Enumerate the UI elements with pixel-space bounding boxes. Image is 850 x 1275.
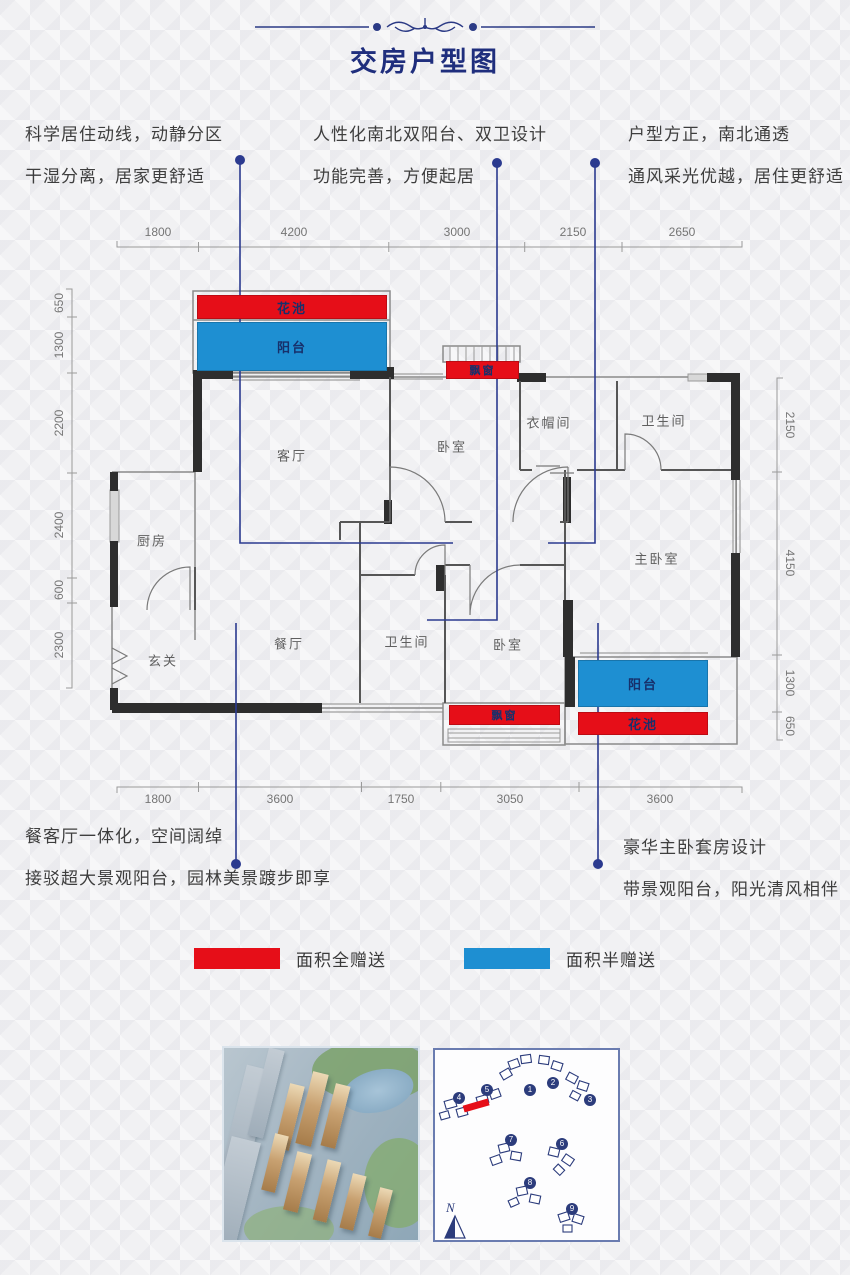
building-number: 1 — [524, 1084, 536, 1096]
band-label: 花池 — [628, 714, 658, 733]
dim-label: 2400 — [52, 512, 66, 539]
legend-swatch-red — [194, 948, 280, 969]
room-label-master: 主卧室 — [634, 549, 679, 568]
legend-swatch-blue — [464, 948, 550, 969]
floorplan-poster: 交房户型图 科学居住动线，动静分区 干湿分离，居家更舒适 人性化南北双阳台、双卫… — [0, 0, 850, 1275]
dim-label: 1800 — [145, 225, 172, 239]
compass-n-label: N — [445, 1200, 456, 1215]
band-label: 飘窗 — [492, 707, 518, 723]
residential-tower — [313, 1159, 342, 1223]
room-label-bedroom-bottom: 卧室 — [493, 635, 523, 654]
dim-label: 650 — [783, 716, 797, 736]
residential-tower — [339, 1173, 366, 1231]
highlighted-unit — [463, 1099, 490, 1113]
site-plan: N 1 2 3 4 5 6 7 8 9 — [433, 1048, 620, 1242]
dim-label: 2200 — [52, 410, 66, 437]
dim-label: 1800 — [145, 792, 172, 806]
room-label-living: 客厅 — [277, 446, 307, 465]
legend-item-full-gift: 面积全赠送 — [194, 946, 386, 971]
room-label-dining: 餐厅 — [274, 634, 304, 653]
building-number: 8 — [524, 1177, 536, 1189]
band-label: 阳台 — [628, 674, 658, 693]
dim-label: 3050 — [497, 792, 524, 806]
room-label-bedroom-top: 卧室 — [437, 437, 467, 456]
building-number: 9 — [566, 1203, 578, 1215]
leader-lines — [236, 162, 598, 862]
flower-bed-band-top: 花池 — [197, 295, 387, 319]
building-number: 4 — [453, 1092, 465, 1104]
site-plan-buildings: N — [435, 1050, 618, 1240]
baywindow-band-top: 飘窗 — [446, 361, 519, 379]
dim-label: 2300 — [52, 632, 66, 659]
balcony-band-top: 阳台 — [197, 322, 387, 371]
legend: 面积全赠送 面积半赠送 — [0, 946, 850, 971]
dim-label: 2650 — [669, 225, 696, 239]
dim-label: 600 — [52, 580, 66, 600]
building-number: 2 — [547, 1077, 559, 1089]
dim-label: 4150 — [783, 550, 797, 577]
band-label: 飘窗 — [470, 362, 496, 378]
legend-label: 面积全赠送 — [296, 946, 386, 971]
room-label-bath-top: 卫生间 — [641, 411, 686, 430]
legend-item-half-gift: 面积半赠送 — [464, 946, 656, 971]
building-number: 6 — [556, 1138, 568, 1150]
aerial-render-image — [222, 1046, 420, 1242]
building-number: 7 — [505, 1134, 517, 1146]
band-label: 花池 — [277, 298, 307, 317]
leader-dots — [231, 155, 603, 869]
dim-label: 2150 — [560, 225, 587, 239]
room-label-bath-bottom: 卫生间 — [384, 632, 429, 651]
dim-label: 1750 — [388, 792, 415, 806]
dim-label: 2150 — [783, 412, 797, 439]
dim-label: 4200 — [281, 225, 308, 239]
legend-label: 面积半赠送 — [566, 946, 656, 971]
band-label: 阳台 — [277, 337, 307, 356]
room-label-cloakroom: 衣帽间 — [526, 413, 571, 432]
building-number: 5 — [481, 1084, 493, 1096]
compass-icon: N — [445, 1200, 465, 1238]
dim-label: 3600 — [267, 792, 294, 806]
dim-label: 3000 — [444, 225, 471, 239]
balcony-band-bottom: 阳台 — [578, 660, 708, 707]
flower-bed-band-bottom: 花池 — [578, 712, 708, 735]
room-label-kitchen: 厨房 — [137, 531, 167, 550]
building-number: 3 — [584, 1094, 596, 1106]
residential-tower — [320, 1083, 350, 1149]
room-label-foyer: 玄关 — [148, 651, 178, 670]
dim-label: 1300 — [783, 670, 797, 697]
baywindow-band-bottom: 飘窗 — [449, 705, 560, 725]
residential-tower — [283, 1151, 312, 1213]
residential-tower — [261, 1133, 289, 1193]
dim-label: 1300 — [52, 332, 66, 359]
dim-label: 3600 — [647, 792, 674, 806]
dim-label: 650 — [52, 293, 66, 313]
